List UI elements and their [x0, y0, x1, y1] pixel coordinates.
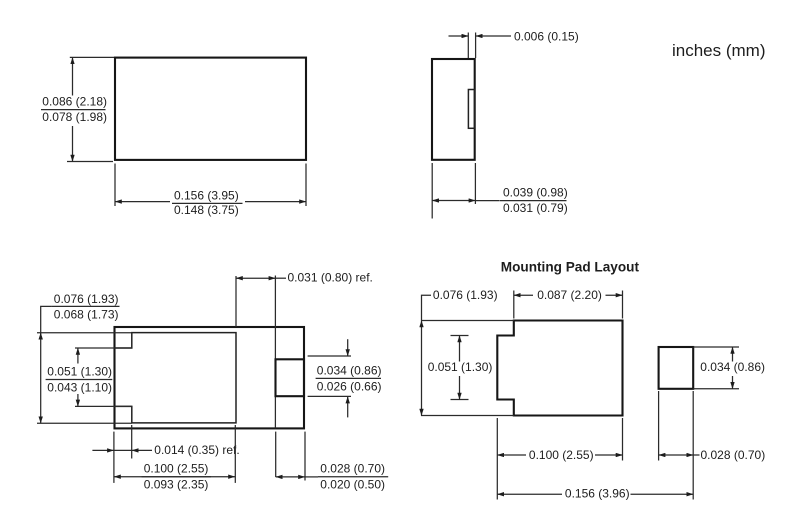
svg-text:0.034 (0.86): 0.034 (0.86): [700, 360, 765, 374]
svg-text:0.039 (0.98): 0.039 (0.98): [503, 186, 568, 200]
svg-text:0.006 (0.15): 0.006 (0.15): [514, 29, 579, 43]
svg-text:0.093 (2.35): 0.093 (2.35): [144, 477, 209, 491]
svg-text:0.156 (3.96): 0.156 (3.96): [565, 486, 630, 500]
svg-text:0.068 (1.73): 0.068 (1.73): [54, 308, 119, 322]
svg-text:0.028 (0.70): 0.028 (0.70): [701, 448, 766, 462]
svg-text:0.031 (0.80) ref.: 0.031 (0.80) ref.: [288, 271, 373, 285]
svg-text:0.043 (1.10): 0.043 (1.10): [47, 380, 112, 394]
svg-text:0.086 (2.18): 0.086 (2.18): [42, 95, 107, 109]
svg-text:inches (mm): inches (mm): [672, 41, 766, 60]
svg-text:0.076 (1.93): 0.076 (1.93): [433, 288, 498, 302]
svg-text:0.148 (3.75): 0.148 (3.75): [174, 203, 239, 217]
svg-text:0.031 (0.79): 0.031 (0.79): [503, 201, 568, 215]
svg-text:0.026 (0.66): 0.026 (0.66): [317, 379, 382, 393]
svg-text:Mounting Pad Layout: Mounting Pad Layout: [501, 259, 640, 274]
svg-text:0.087 (2.20): 0.087 (2.20): [537, 288, 602, 302]
svg-text:0.156 (3.95): 0.156 (3.95): [174, 189, 239, 203]
svg-text:0.051 (1.30): 0.051 (1.30): [47, 365, 112, 379]
svg-text:0.020 (0.50): 0.020 (0.50): [320, 477, 385, 491]
svg-text:0.034 (0.86): 0.034 (0.86): [317, 364, 382, 378]
svg-text:0.076 (1.93): 0.076 (1.93): [54, 292, 119, 306]
svg-text:0.100 (2.55): 0.100 (2.55): [529, 448, 594, 462]
svg-text:0.014 (0.35) ref.: 0.014 (0.35) ref.: [154, 443, 239, 457]
svg-text:0.100 (2.55): 0.100 (2.55): [144, 461, 209, 475]
svg-text:0.028 (0.70): 0.028 (0.70): [320, 461, 385, 475]
svg-text:0.051 (1.30): 0.051 (1.30): [428, 360, 493, 374]
svg-text:0.078 (1.98): 0.078 (1.98): [42, 110, 107, 124]
